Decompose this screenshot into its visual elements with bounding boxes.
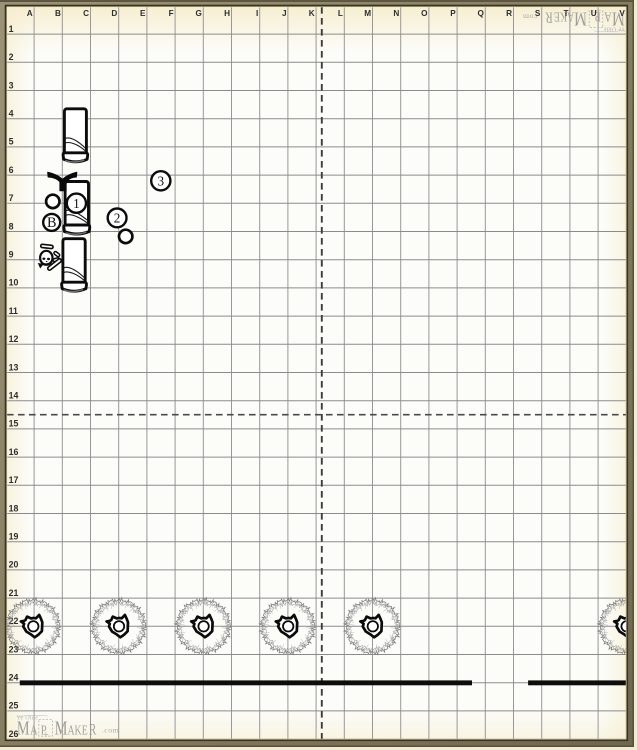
svg-text:13: 13 bbox=[9, 362, 19, 372]
svg-text:T: T bbox=[563, 9, 568, 18]
svg-text:M: M bbox=[364, 9, 371, 18]
svg-text:6: 6 bbox=[9, 165, 14, 175]
svg-text:I: I bbox=[256, 9, 258, 18]
svg-text:26: 26 bbox=[9, 729, 19, 739]
svg-text:1: 1 bbox=[9, 24, 14, 34]
svg-text:19: 19 bbox=[9, 532, 19, 542]
svg-text:7: 7 bbox=[9, 193, 14, 203]
svg-text:18: 18 bbox=[9, 503, 19, 513]
svg-text:17: 17 bbox=[9, 475, 19, 485]
svg-text:E: E bbox=[140, 9, 146, 18]
svg-text:D: D bbox=[111, 9, 117, 18]
svg-text:G: G bbox=[196, 9, 202, 18]
svg-text:L: L bbox=[338, 9, 343, 18]
svg-text:2: 2 bbox=[9, 52, 14, 62]
svg-text:14: 14 bbox=[9, 391, 19, 401]
svg-text:B: B bbox=[47, 215, 56, 231]
svg-text:N: N bbox=[393, 9, 399, 18]
svg-text:11: 11 bbox=[9, 306, 18, 316]
svg-text:C: C bbox=[83, 9, 89, 18]
svg-text:25: 25 bbox=[9, 701, 19, 711]
svg-text:1: 1 bbox=[73, 196, 80, 211]
svg-text:15: 15 bbox=[9, 419, 19, 429]
svg-text:20: 20 bbox=[9, 560, 19, 570]
svg-text:5: 5 bbox=[9, 137, 14, 147]
svg-text:23: 23 bbox=[9, 644, 19, 654]
svg-text:3: 3 bbox=[158, 173, 165, 188]
svg-text:O: O bbox=[421, 9, 428, 18]
svg-text:P: P bbox=[450, 9, 456, 18]
svg-text:R: R bbox=[506, 9, 512, 18]
svg-text:4: 4 bbox=[9, 109, 14, 119]
svg-text:J: J bbox=[282, 9, 287, 18]
svg-text:S: S bbox=[535, 9, 541, 18]
svg-text:A: A bbox=[27, 9, 33, 18]
svg-text:16: 16 bbox=[9, 447, 19, 457]
svg-text:2: 2 bbox=[114, 211, 121, 226]
svg-text:V: V bbox=[619, 9, 625, 18]
svg-text:K: K bbox=[309, 9, 315, 18]
svg-text:B: B bbox=[55, 9, 61, 18]
svg-text:Q: Q bbox=[478, 9, 485, 18]
svg-text:21: 21 bbox=[9, 588, 19, 598]
svg-text:H: H bbox=[224, 9, 230, 18]
svg-text:12: 12 bbox=[9, 334, 19, 344]
svg-text:24: 24 bbox=[9, 673, 19, 683]
svg-text:9: 9 bbox=[9, 250, 14, 260]
svg-text:F: F bbox=[169, 9, 174, 18]
svg-text:8: 8 bbox=[9, 221, 14, 231]
svg-text:10: 10 bbox=[9, 278, 19, 288]
svg-text:3: 3 bbox=[9, 80, 14, 90]
svg-text:U: U bbox=[591, 9, 597, 18]
